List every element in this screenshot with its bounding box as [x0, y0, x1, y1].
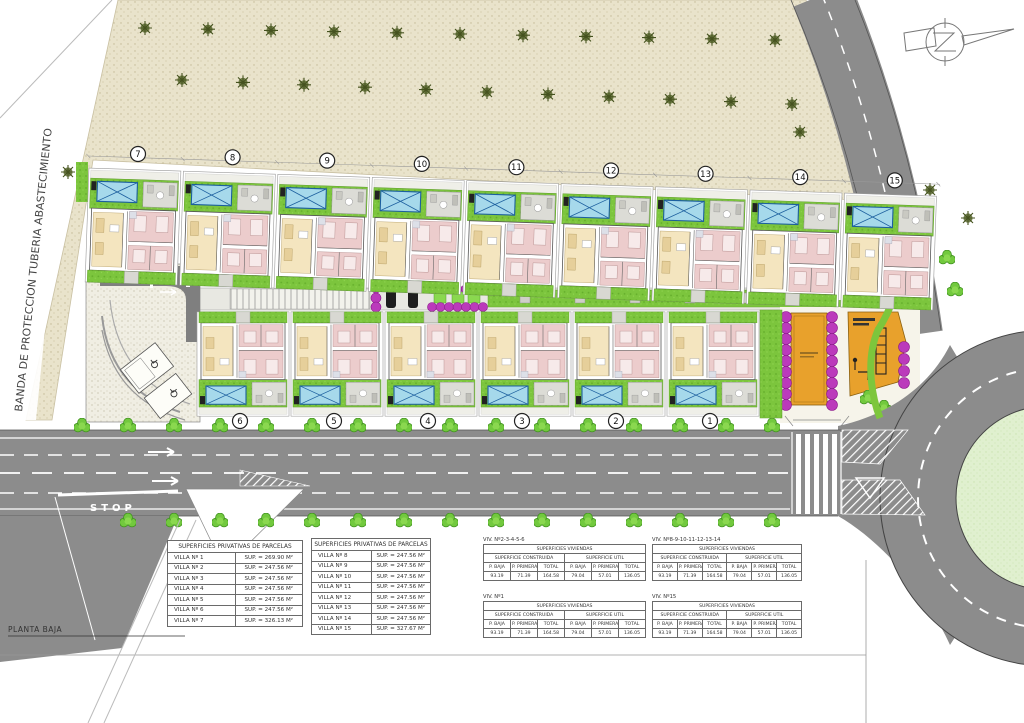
purple-bush-icon: [453, 303, 462, 312]
villa-label: VILLA Nº 4: [168, 584, 236, 595]
purple-bush-icon: [827, 334, 838, 345]
dwelling-table-title: SUPERFICIES VIVIENDAS: [484, 545, 646, 554]
col-header: TOTAL: [538, 563, 565, 572]
tree-icon: [453, 27, 467, 41]
dwelling-table: SUPERFICIES VIVIENDASSUPERFICIE CONSTRUI…: [483, 544, 646, 581]
tree-icon: [480, 85, 494, 99]
tree-icon: [358, 80, 372, 94]
surface-value: 136.05: [619, 572, 646, 581]
villa-plot: [479, 312, 571, 416]
villa-row-bottom: [197, 312, 759, 416]
col-header: P. PRIMERA: [752, 563, 777, 572]
table-row: VILLA Nº 1SUP. = 269.90 M²: [168, 553, 303, 564]
villa-number: 10: [416, 160, 427, 170]
tree-icon: [297, 78, 311, 92]
tree-icon: [419, 83, 433, 97]
villa-number: 7: [135, 150, 140, 160]
tree-icon: [138, 21, 152, 35]
tree-icon: [961, 211, 975, 225]
group-header: SUPERFICIE UTIL: [727, 554, 802, 563]
villa-number: 3: [519, 417, 524, 427]
street-tree-icon: [764, 418, 781, 432]
purple-bush-icon: [899, 342, 910, 353]
villa-plot: [652, 187, 748, 304]
villa-surface: SUP. = 247.56 M²: [235, 574, 303, 585]
table-row: VILLA Nº 13SUP. = 247.56 M²: [312, 603, 431, 614]
villa-label: VILLA Nº 9: [312, 561, 372, 572]
surface-value: 79.04: [727, 629, 752, 638]
villa-surface: SUP. = 327.67 M²: [371, 624, 431, 635]
street-tree-icon: [718, 418, 735, 432]
group-header: SUPERFICIE UTIL: [727, 611, 802, 620]
surface-value: 71.39: [677, 629, 702, 638]
villa-label: VILLA Nº 10: [312, 572, 372, 583]
villa-number: 11: [511, 163, 522, 173]
surface-value: 136.05: [619, 629, 646, 638]
purple-bush-icon: [827, 389, 838, 400]
table-row: 93.1971.39164.5879.0457.01136.05: [484, 572, 646, 581]
petanque-court: [791, 313, 827, 405]
col-header: TOTAL: [777, 563, 802, 572]
col-header: P. PRIMERA: [677, 563, 702, 572]
surface-value: 93.19: [484, 572, 511, 581]
tree-icon: [264, 23, 278, 37]
villa-plot: [746, 190, 842, 307]
tree-icon: [201, 22, 215, 36]
tree-icon: [236, 75, 250, 89]
purple-bush-icon: [827, 367, 838, 378]
villa-surface: SUP. = 247.56 M²: [371, 593, 431, 604]
surface-value: 71.39: [511, 629, 538, 638]
villa-number: 2: [613, 417, 618, 427]
villa-number: 9: [324, 157, 329, 167]
villa-label: VILLA Nº 13: [312, 603, 372, 614]
col-header: P. PRIMERA: [592, 563, 619, 572]
surface-value: 164.58: [538, 572, 565, 581]
col-header: P. PRIMERA: [592, 620, 619, 629]
col-header: P. PRIMERA: [677, 620, 702, 629]
col-header: TOTAL: [777, 620, 802, 629]
group-header: SUPERFICIE UTIL: [565, 554, 646, 563]
table-row: VILLA Nº 15SUP. = 327.67 M²: [312, 624, 431, 635]
surface-value: 57.01: [592, 572, 619, 581]
villa-label: VILLA Nº 5: [168, 595, 236, 606]
bush-icon: [947, 282, 964, 296]
street-tree-icon: [580, 418, 597, 432]
tree-icon: [579, 29, 593, 43]
bush-icon: [939, 250, 956, 264]
purple-bush-icon: [827, 400, 838, 411]
surface-value: 57.01: [752, 629, 777, 638]
street-tree-icon: [258, 418, 275, 432]
dwelling-table-title: SUPERFICIES VIVIENDAS: [653, 602, 802, 611]
table-row: VILLA Nº 10SUP. = 247.56 M²: [312, 572, 431, 583]
dwelling-table-title: SUPERFICIES VIVIENDAS: [484, 602, 646, 611]
purple-bush-icon: [371, 302, 381, 312]
villa-label: VILLA Nº 11: [312, 582, 372, 593]
villa-number: 12: [606, 167, 617, 177]
villa-plot: [557, 184, 653, 301]
villa-surface: SUP. = 247.56 M²: [371, 582, 431, 593]
street-tree-icon: [350, 418, 367, 432]
purple-bush-icon: [479, 303, 488, 312]
tree-icon: [785, 97, 799, 111]
dwelling-table-header: VIV. Nº1: [483, 594, 504, 600]
street-tree-icon: [488, 418, 505, 432]
tree-icon: [327, 25, 341, 39]
surface-value: 164.58: [702, 572, 727, 581]
surface-value: 71.39: [677, 572, 702, 581]
group-header: SUPERFICIE CONSTRUIDA: [653, 554, 727, 563]
surface-value: 93.19: [653, 629, 678, 638]
col-header: TOTAL: [619, 563, 646, 572]
tree-icon: [793, 125, 807, 139]
table-row: VILLA Nº 2SUP. = 247.56 M²: [168, 563, 303, 574]
surface-value: 136.05: [777, 572, 802, 581]
tree-icon: [390, 26, 404, 40]
villa-surface: SUP. = 247.56 M²: [235, 584, 303, 595]
group-header: SUPERFICIE UTIL: [565, 611, 646, 620]
villa-number: 15: [889, 176, 900, 186]
surface-value: 57.01: [592, 629, 619, 638]
tree-icon: [663, 92, 677, 106]
villa-surface: SUP. = 247.56 M²: [371, 603, 431, 614]
table-row: VILLA Nº 9SUP. = 247.56 M²: [312, 561, 431, 572]
villa-number: 6: [237, 417, 242, 427]
surface-value: 93.19: [653, 572, 678, 581]
north-arrow-icon: [904, 18, 1014, 66]
villa-label: VILLA Nº 3: [168, 574, 236, 585]
dwelling-table-header: VIV. Nº2-3-4-5-6: [483, 537, 525, 543]
tree-icon: [61, 165, 75, 179]
villa-plot: [180, 171, 276, 288]
col-header: P. BAJA: [565, 563, 592, 572]
purple-bush-icon: [899, 378, 910, 389]
tree-icon: [602, 90, 616, 104]
group-header: SUPERFICIE CONSTRUIDA: [484, 554, 565, 563]
site-plan: BANDA DE PROTECCION TUBERIA ABASTECIMIEN…: [0, 0, 1024, 723]
villa-number: 13: [700, 170, 711, 180]
table-row: 93.1971.39164.5879.0457.01136.05: [653, 572, 802, 581]
table-row: VILLA Nº 8SUP. = 247.56 M²: [312, 551, 431, 562]
purple-bush-icon: [371, 293, 381, 303]
surface-value: 93.19: [484, 629, 511, 638]
dwelling-table: SUPERFICIES VIVIENDASSUPERFICIE CONSTRUI…: [483, 601, 646, 638]
parcel-table-title: SUPERFICIES PRIVATIVAS DE PARCELAS: [312, 539, 431, 551]
villa-surface: SUP. = 247.56 M²: [235, 563, 303, 574]
street-tree-icon: [442, 418, 459, 432]
col-header: P. PRIMERA: [752, 620, 777, 629]
villa-label: VILLA Nº 1: [168, 553, 236, 564]
villa-surface: SUP. = 326.13 M²: [235, 616, 303, 627]
dwelling-table: SUPERFICIES VIVIENDASSUPERFICIE CONSTRUI…: [652, 544, 802, 581]
col-header: TOTAL: [619, 620, 646, 629]
surface-value: 79.04: [727, 572, 752, 581]
purple-bush-icon: [428, 303, 437, 312]
col-header: P. BAJA: [565, 620, 592, 629]
col-header: TOTAL: [702, 563, 727, 572]
purple-bush-icon: [827, 345, 838, 356]
tree-icon: [724, 95, 738, 109]
villa-plot: [463, 181, 559, 298]
villa-label: VILLA Nº 12: [312, 593, 372, 604]
villa-plot: [385, 312, 477, 416]
villa-surface: SUP. = 247.56 M²: [371, 561, 431, 572]
street-tree-icon: [304, 418, 321, 432]
tree-icon: [516, 28, 530, 42]
purple-bush-icon: [899, 366, 910, 377]
dwelling-table-header: VIV. Nº8-9-10-11-12-13-14: [652, 537, 720, 543]
villa-plot: [274, 174, 370, 291]
villa-number: 8: [230, 153, 235, 163]
villa-number: 4: [425, 417, 430, 427]
villa-surface: SUP. = 247.56 M²: [371, 551, 431, 562]
dwelling-table-title: SUPERFICIES VIVIENDAS: [653, 545, 802, 554]
tree-icon: [923, 183, 937, 197]
stop-marking: STOP: [90, 503, 136, 514]
surface-value: 136.05: [777, 629, 802, 638]
villa-label: VILLA Nº 14: [312, 614, 372, 625]
street-tree-icon: [534, 418, 551, 432]
parcel-table: SUPERFICIES PRIVATIVAS DE PARCELASVILLA …: [167, 540, 303, 627]
purple-bush-icon: [827, 323, 838, 334]
street-tree-icon: [396, 418, 413, 432]
col-header: P. BAJA: [727, 620, 752, 629]
col-header: P. BAJA: [484, 563, 511, 572]
villa-number: 5: [331, 417, 336, 427]
table-row: VILLA Nº 3SUP. = 247.56 M²: [168, 574, 303, 585]
entrance-court: [86, 264, 200, 422]
villa-number: 14: [795, 173, 806, 183]
plan-title: PLANTA BAJA: [8, 625, 62, 634]
group-header: SUPERFICIE CONSTRUIDA: [484, 611, 565, 620]
purple-bush-icon: [436, 303, 445, 312]
villa-plot: [573, 312, 665, 416]
villa-plot: [291, 312, 383, 416]
purple-bush-icon: [827, 312, 838, 323]
table-row: 93.1971.39164.5879.0457.01136.05: [653, 629, 802, 638]
col-header: P. BAJA: [653, 563, 678, 572]
villa-number: 1: [707, 417, 712, 427]
villa-plot: [85, 168, 181, 285]
col-header: TOTAL: [538, 620, 565, 629]
tree-icon: [642, 31, 656, 45]
col-header: P. BAJA: [653, 620, 678, 629]
villa-label: VILLA Nº 15: [312, 624, 372, 635]
street-tree-icon: [672, 418, 689, 432]
dwelling-table-header: VIV. Nº15: [652, 594, 676, 600]
parcel-table: SUPERFICIES PRIVATIVAS DE PARCELASVILLA …: [311, 538, 431, 635]
villa-surface: SUP. = 247.56 M²: [371, 572, 431, 583]
street-tree-icon: [212, 418, 229, 432]
purple-bush-icon: [827, 356, 838, 367]
villa-surface: SUP. = 247.56 M²: [371, 614, 431, 625]
table-row: VILLA Nº 4SUP. = 247.56 M²: [168, 584, 303, 595]
villa-surface: SUP. = 247.56 M²: [235, 605, 303, 616]
villa-plot: [368, 177, 464, 294]
villa-label: VILLA Nº 6: [168, 605, 236, 616]
purple-bush-icon: [462, 303, 471, 312]
tree-icon: [541, 87, 555, 101]
table-row: VILLA Nº 14SUP. = 247.56 M²: [312, 614, 431, 625]
purple-bush-icon: [470, 303, 479, 312]
surface-value: 71.39: [511, 572, 538, 581]
tree-icon: [768, 33, 782, 47]
dwelling-table: SUPERFICIES VIVIENDASSUPERFICIE CONSTRUI…: [652, 601, 802, 638]
col-header: P. BAJA: [484, 620, 511, 629]
table-row: 93.1971.39164.5879.0457.01136.05: [484, 629, 646, 638]
villa-label: VILLA Nº 7: [168, 616, 236, 627]
parcel-table-title: SUPERFICIES PRIVATIVAS DE PARCELAS: [168, 541, 303, 553]
villa-surface: SUP. = 269.90 M²: [235, 553, 303, 564]
purple-bush-icon: [827, 378, 838, 389]
villa-label: VILLA Nº 8: [312, 551, 372, 562]
group-header: SUPERFICIE CONSTRUIDA: [653, 611, 727, 620]
surface-value: 164.58: [702, 629, 727, 638]
col-header: TOTAL: [702, 620, 727, 629]
villa-plot: [841, 193, 937, 310]
street-tree-icon: [626, 418, 643, 432]
table-row: VILLA Nº 12SUP. = 247.56 M²: [312, 593, 431, 604]
col-header: P. PRIMERA: [511, 620, 538, 629]
tree-icon: [705, 32, 719, 46]
surface-value: 164.58: [538, 629, 565, 638]
villa-surface: SUP. = 247.56 M²: [235, 595, 303, 606]
table-row: VILLA Nº 6SUP. = 247.56 M²: [168, 605, 303, 616]
villa-plot: [667, 312, 759, 416]
col-header: P. BAJA: [727, 563, 752, 572]
table-row: VILLA Nº 7SUP. = 326.13 M²: [168, 616, 303, 627]
purple-bush-icon: [445, 303, 454, 312]
tree-icon: [175, 73, 189, 87]
table-row: VILLA Nº 5SUP. = 247.56 M²: [168, 595, 303, 606]
purple-bush-icon: [899, 354, 910, 365]
surface-value: 79.04: [565, 629, 592, 638]
table-row: VILLA Nº 11SUP. = 247.56 M²: [312, 582, 431, 593]
surface-value: 57.01: [752, 572, 777, 581]
villa-plot: [197, 312, 289, 416]
villa-label: VILLA Nº 2: [168, 563, 236, 574]
col-header: P. PRIMERA: [511, 563, 538, 572]
surface-value: 79.04: [565, 572, 592, 581]
